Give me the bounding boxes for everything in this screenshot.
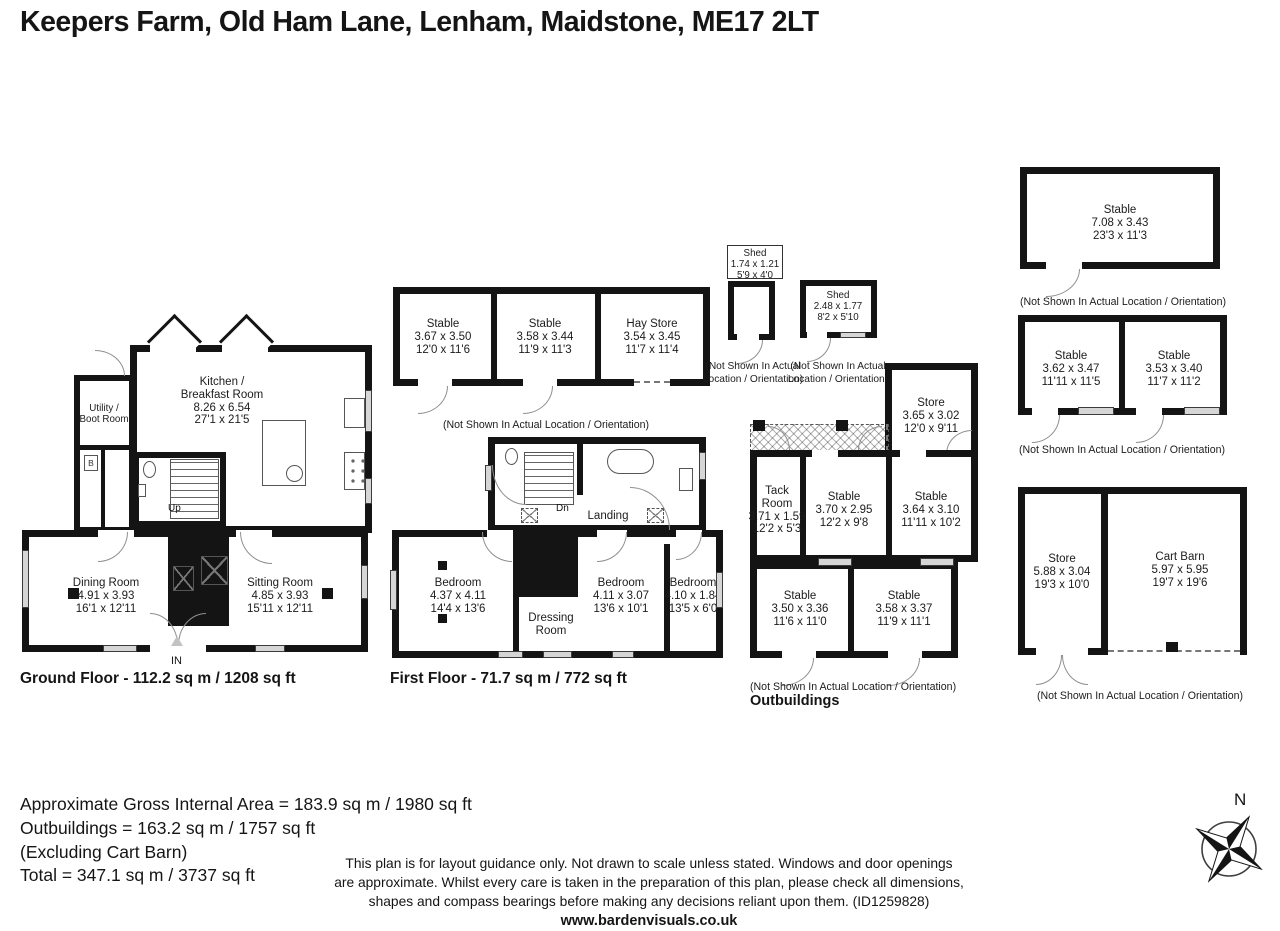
cooker-icon: [344, 452, 365, 490]
first-floor-label: First Floor - 71.7 sq m / 772 sq ft: [390, 670, 627, 688]
not-shown-caption: (Not Shown In Actual Location / Orientat…: [1037, 690, 1243, 702]
shed1-outline: [728, 281, 775, 340]
door-arc: [418, 386, 448, 414]
skylight-icon: [521, 508, 538, 523]
stairs-down-label: Dn: [556, 503, 569, 514]
entrance-label: IN: [171, 655, 182, 667]
bedroom3-label: Bedroom 4.10 x 1.84 13'5 x 6'0: [665, 577, 722, 615]
window: [255, 645, 285, 652]
open-boundary-dash: [886, 424, 888, 452]
window: [485, 465, 492, 491]
chimney-marker: [322, 588, 333, 599]
out-stable1-label: Stable 3.70 x 2.95 12'2 x 9'8: [816, 491, 873, 529]
window: [361, 565, 368, 599]
door-arc: [95, 350, 125, 376]
stable-a1-label: Stable 3.67 x 3.50 12'0 x 11'6: [415, 318, 472, 356]
fireplace-icon: [201, 556, 228, 585]
store-label: Store 5.88 x 3.04 19'3 x 10'0: [1034, 553, 1091, 591]
shed2-label: Shed 2.48 x 1.77 8'2 x 5'10: [814, 291, 862, 323]
entrance-arrow-icon: [171, 636, 183, 646]
shed1-label: Shed 1.74 x 1.21 5'9 x 4'0: [731, 249, 779, 281]
window: [365, 478, 372, 504]
not-shown-caption: Location / Orientation): [788, 374, 888, 385]
bath-icon: [607, 449, 654, 474]
north-label: N: [1234, 790, 1246, 810]
window: [716, 572, 723, 608]
page-title: Keepers Farm, Old Ham Lane, Lenham, Maid…: [20, 6, 819, 39]
open-doorway-dash: [634, 381, 670, 383]
wall: [848, 568, 854, 652]
wall: [491, 294, 497, 379]
wall: [1240, 487, 1247, 655]
wall: [1119, 321, 1125, 409]
window: [1184, 407, 1220, 415]
door-arc: [1062, 655, 1088, 685]
not-shown-caption: (Not Shown In Actual Location / Orientat…: [443, 419, 649, 431]
floor-plan-canvas: Keepers Farm, Old Ham Lane, Lenham, Maid…: [0, 0, 1280, 931]
door-opening: [418, 379, 452, 386]
window: [818, 558, 852, 566]
window: [365, 390, 372, 432]
door-opening: [1032, 408, 1058, 415]
door-opening: [1136, 408, 1162, 415]
window: [543, 651, 572, 658]
out-stable4-label: Stable 3.58 x 3.37 11'9 x 11'1: [876, 590, 933, 628]
dining-room-label: Dining Room 4.91 x 3.93 16'1 x 12'11: [73, 577, 139, 615]
door-opening: [1046, 262, 1082, 269]
chimney-marker: [438, 561, 447, 570]
door-opening: [900, 450, 926, 457]
door-opening: [523, 379, 557, 386]
not-shown-caption: (Not Shown In Actual Location / Orientat…: [750, 681, 956, 693]
tack-room-label: Tack Room 3.71 x 1.59 12'2 x 5'3: [749, 485, 806, 536]
kitchen-label: Kitchen / Breakfast Room 8.26 x 6.54 27'…: [181, 376, 263, 427]
stairs-up-label: Up: [168, 503, 181, 514]
out-store-label: Store 3.65 x 3.02 12'0 x 9'11: [903, 397, 960, 435]
window: [699, 452, 706, 480]
sink-icon: [679, 468, 693, 491]
post-marker: [836, 420, 848, 431]
stable-c2-label: Stable 3.53 x 3.40 11'7 x 11'2: [1146, 350, 1203, 388]
sink-icon: [286, 465, 303, 482]
door-arc: [1036, 655, 1062, 685]
ground-floor-label: Ground Floor - 112.2 sq m / 1208 sq ft: [20, 670, 296, 688]
fireplace-icon: [173, 566, 194, 591]
not-shown-caption: (Not Shown In Actual Location / Orientat…: [1019, 444, 1225, 456]
bedroom1-label: Bedroom 4.37 x 4.11 14'4 x 13'6: [430, 577, 486, 615]
door-arc: [807, 338, 831, 362]
window: [840, 332, 866, 338]
dressing-room-label: Dressing Room: [528, 612, 573, 638]
post-marker: [1166, 642, 1178, 652]
out-stable3-label: Stable 3.50 x 3.36 11'6 x 11'0: [772, 590, 829, 628]
post-marker: [753, 420, 765, 431]
stable-c1-label: Stable 3.62 x 3.47 11'11 x 11'5: [1042, 350, 1101, 388]
entrance-opening: [150, 645, 206, 652]
window: [920, 558, 954, 566]
door-arc: [1046, 269, 1080, 297]
wall: [101, 450, 105, 527]
total-area-line: Total = 347.1 sq m / 3737 sq ft: [20, 865, 255, 886]
door-arc: [1032, 415, 1060, 443]
window: [22, 550, 29, 608]
door-opening: [1036, 648, 1088, 655]
outbuildings-section-label: Outbuildings: [750, 693, 839, 709]
wall: [886, 457, 892, 555]
window: [1078, 407, 1114, 415]
skylight-icon: [647, 508, 664, 523]
wall: [577, 437, 583, 495]
not-shown-caption: (Not Shown In Actual: [790, 361, 885, 372]
staircase: [524, 452, 574, 505]
not-shown-caption: (Not Shown In Actual: [705, 361, 800, 372]
stair-void-core: [519, 530, 578, 597]
wall: [1108, 487, 1247, 494]
disclaimer: This plan is for layout guidance only. N…: [296, 854, 1002, 931]
stable-b-label: Stable 7.08 x 3.43 23'3 x 11'3: [1092, 204, 1149, 242]
out-stable2-label: Stable 3.64 x 3.10 11'11 x 10'2: [901, 491, 961, 529]
door-arc: [523, 386, 553, 414]
toilet-icon: [143, 461, 156, 478]
website-link: www.bardenvisuals.co.uk: [296, 912, 1002, 931]
stable-a2-label: Stable 3.58 x 3.44 11'9 x 11'3: [517, 318, 574, 356]
not-shown-caption: (Not Shown In Actual Location / Orientat…: [1020, 296, 1226, 308]
boiler-box: B: [84, 455, 98, 471]
sitting-room-label: Sitting Room 4.85 x 3.93 15'11 x 12'11: [247, 577, 313, 615]
window: [390, 570, 397, 610]
utility-label: Utility / Boot Room: [79, 404, 128, 426]
outbuildings-area-line: Outbuildings = 163.2 sq m / 1757 sq ft: [20, 818, 315, 839]
cart-barn-label: Cart Barn 5.97 x 5.95 19'7 x 19'6: [1152, 551, 1209, 589]
appliance-icon: [344, 398, 365, 428]
door-opening: [782, 651, 816, 658]
wall: [595, 294, 601, 379]
window: [612, 651, 634, 658]
compass-rose: [1186, 792, 1274, 890]
bedroom2-label: Bedroom 4.11 x 3.07 13'6 x 10'1: [593, 577, 649, 615]
gross-area-line: Approximate Gross Internal Area = 183.9 …: [20, 794, 472, 815]
window: [498, 651, 523, 658]
door-arc: [1136, 415, 1164, 443]
door-opening: [888, 651, 922, 658]
landing-label: Landing: [588, 510, 629, 523]
basin-icon: [138, 484, 146, 497]
door-opening: [812, 450, 838, 457]
excluding-line: (Excluding Cart Barn): [20, 842, 187, 863]
toilet-icon: [505, 448, 518, 465]
hay-store-label: Hay Store 3.54 x 3.45 11'7 x 11'4: [624, 318, 681, 356]
window: [103, 645, 137, 652]
